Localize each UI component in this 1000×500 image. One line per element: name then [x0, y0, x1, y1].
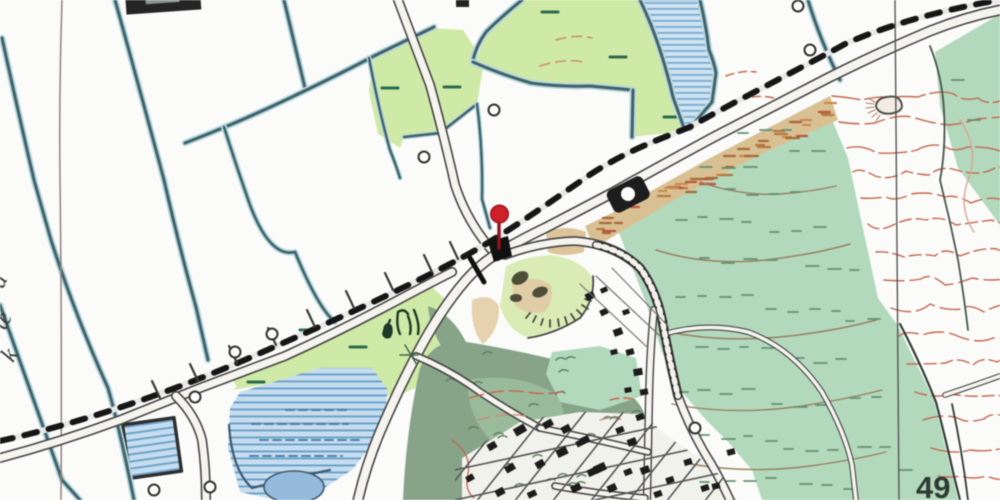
svg-text:49: 49 [916, 470, 950, 500]
